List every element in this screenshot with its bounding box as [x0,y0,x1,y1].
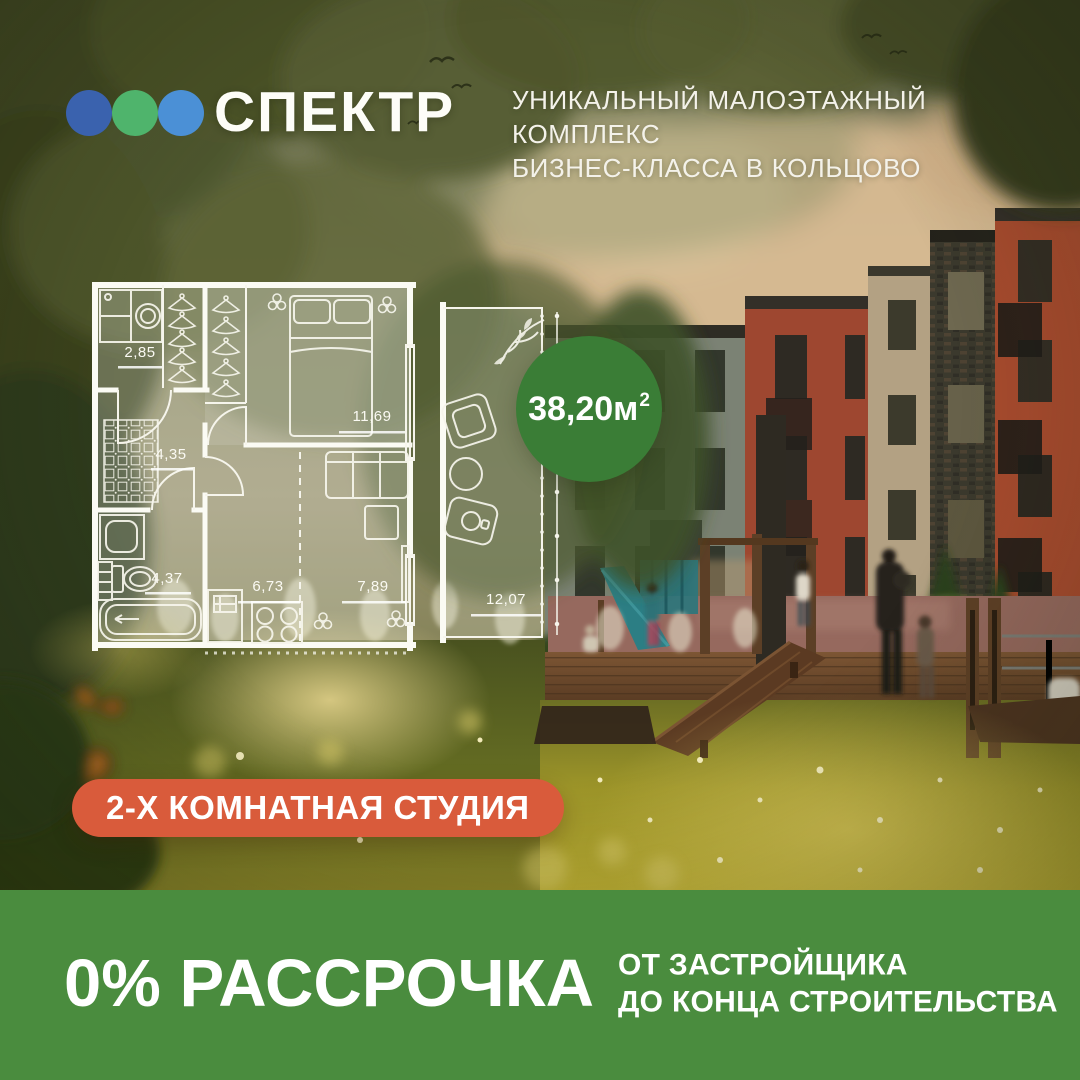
logo-dot-1 [66,90,112,136]
total-area-badge: 38,20м2 [516,336,662,482]
hallway-area-label: 4,35 [155,446,186,463]
total-area-value: 38,20м [528,390,638,429]
offer-subline-1: ОТ ЗАСТРОЙЩИКА [618,947,1058,984]
offer-band: 0% РАССРОЧКА ОТ ЗАСТРОЙЩИКА ДО КОНЦА СТР… [0,890,1080,1080]
logo: СПЕКТР [66,84,455,141]
offer-headline: 0% РАССРОЧКА [64,945,594,1022]
tagline: УНИКАЛЬНЫЙ МАЛОЭТАЖНЫЙ КОМПЛЕКС БИЗНЕС-К… [512,83,1080,185]
bathroom-area-label: 4,37 [151,570,182,587]
tagline-line-1: УНИКАЛЬНЫЙ МАЛОЭТАЖНЫЙ КОМПЛЕКС [512,83,1080,151]
logo-dot-2 [112,90,158,136]
terrace-area-label: 12,07 [486,591,526,608]
logo-text: СПЕКТР [214,84,455,141]
kitchen-area-label: 6,73 [252,578,283,595]
apartment-type-badge: 2-Х КОМНАТНАЯ СТУДИЯ [72,779,564,837]
tagline-line-2: БИЗНЕС-КЛАССА В КОЛЬЦОВО [512,151,1080,185]
offer-subline-2: ДО КОНЦА СТРОИТЕЛЬСТВА [618,984,1058,1021]
total-area-sup: 2 [639,390,650,412]
logo-dots-icon [66,85,206,141]
bedroom-area-label: 11,69 [353,408,392,425]
living-area-label: 7,89 [357,578,388,595]
logo-dot-3 [158,90,204,136]
dressing-area-label: 2,85 [124,344,155,361]
offer-subtext: ОТ ЗАСТРОЙЩИКА ДО КОНЦА СТРОИТЕЛЬСТВА [618,947,1058,1021]
poster: 2,85 11,69 4,35 4,37 6,73 7,89 12,07 СПЕ… [0,0,1080,1080]
